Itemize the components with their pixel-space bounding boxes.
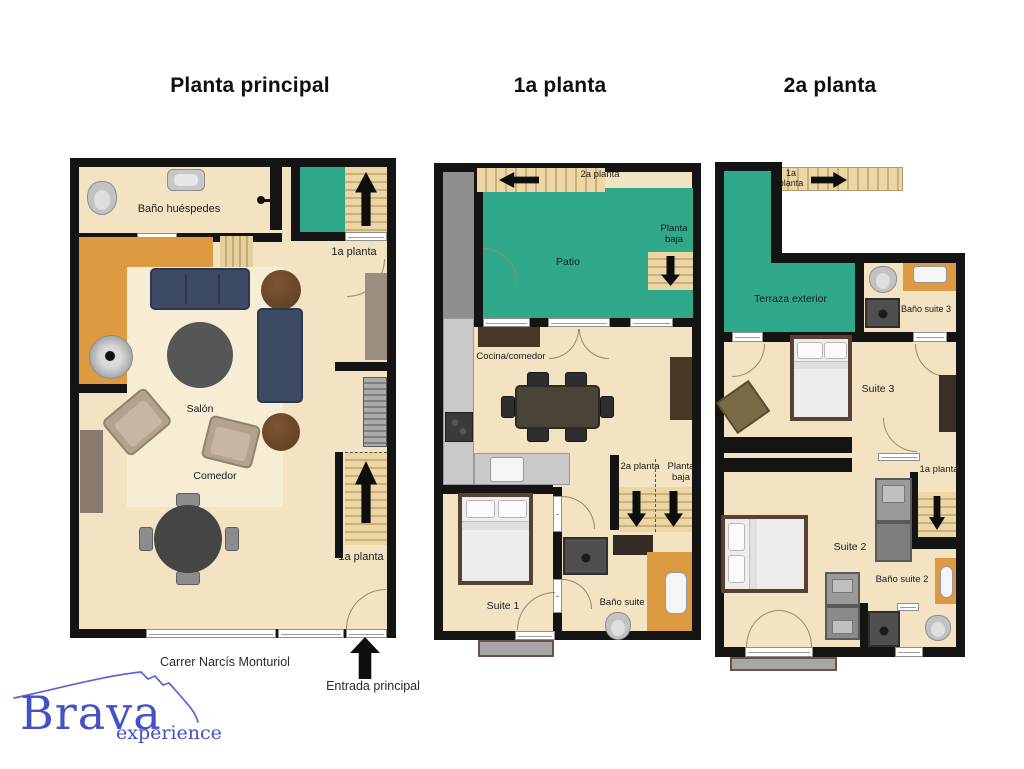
shower-suite2-icon (868, 611, 900, 647)
stairs-divider-dashed (655, 459, 656, 532)
window-patio-1 (483, 318, 530, 327)
wardrobe-suite3 (939, 375, 956, 432)
kitchen-counter-vertical (443, 318, 474, 485)
sofa-vertical (257, 308, 303, 403)
balcony-door-jamb (745, 647, 813, 657)
round-coffee-table (167, 322, 233, 388)
stairs-down-arrow-icon (664, 491, 683, 527)
cabinet-right (365, 273, 387, 360)
dresser-drawer (832, 579, 853, 593)
wall-stub (264, 199, 271, 202)
dining-table (515, 385, 600, 429)
bed-pillow (498, 500, 527, 518)
wall-divider-1 (724, 437, 852, 453)
wall-divider-2 (724, 458, 852, 472)
bed-suite3 (790, 335, 852, 421)
balcony-door-jamb (515, 631, 555, 640)
sink-icon (167, 169, 205, 191)
stove-icon (445, 412, 473, 442)
stairs-bottom-label: 1a planta (331, 551, 391, 564)
stairs-to-planta-baja (648, 252, 693, 290)
sofa-cushion-line (218, 274, 220, 304)
wall-right (956, 253, 965, 657)
bathroom-label: Baño huéspedes (109, 203, 249, 216)
terrace-column (724, 171, 771, 332)
stairs-down-2a (918, 492, 956, 537)
window-front-1 (146, 629, 276, 638)
stairs-down-arrow-icon (661, 256, 680, 286)
wall-bathroom-right (270, 167, 282, 230)
brand-logo: Brava experience (8, 664, 248, 768)
bath2-label: Baño suite 2 (867, 575, 937, 586)
bath1-door-jamb (553, 496, 562, 532)
wall-passage-right (474, 172, 483, 318)
suite2-label: Suite 2 (820, 541, 880, 553)
window-bottom (895, 647, 923, 657)
bath2-sink-icon (940, 566, 953, 598)
door-patio-double-jamb (548, 318, 610, 327)
bath3-sink-icon (913, 266, 947, 283)
stairs-top-label: 1a planta (321, 246, 387, 259)
wall-bath2 (860, 603, 868, 647)
bath3-label: Baño suite 3 (895, 304, 957, 314)
stairs-left-arrow-icon (499, 172, 539, 188)
wall-stairs-bottom-left (335, 452, 343, 558)
stairs-down-arrow-icon (929, 496, 945, 530)
armchair-seat (210, 426, 252, 462)
salon-label: Salón (165, 403, 235, 415)
wood-round-table (261, 270, 301, 310)
wall-terrace-bath (855, 263, 864, 332)
stairs-mid-right-label: Planta baja (660, 462, 702, 484)
bath2-door-jamb (897, 603, 919, 611)
bed-pillow (824, 342, 847, 359)
side-passage-gray (443, 172, 474, 318)
bed-fold (462, 521, 529, 530)
title-2a-planta: 2a planta (750, 74, 910, 98)
dining-chair (527, 427, 549, 442)
dining-chair (565, 427, 587, 442)
stairs-up-arrow-icon (355, 461, 377, 523)
stairs-mid-double (619, 487, 692, 532)
wall-top-main (771, 253, 965, 263)
dresser-unit-top (875, 478, 912, 522)
wood-floor-strip (220, 236, 253, 268)
balcony-2a-planta (730, 657, 837, 671)
stairs-up-arrow-icon (355, 172, 377, 226)
kitchen-label: Cocina/comedor (461, 352, 561, 363)
entrance-door-jamb (346, 629, 387, 638)
title-planta-principal: Planta principal (120, 74, 380, 98)
stairs-patio-label: Planta baja (653, 224, 695, 246)
suite3-label: Suite 3 (848, 383, 908, 395)
bath1-sink-icon (665, 572, 687, 614)
toilet-icon (605, 612, 631, 640)
bed-pillow (797, 342, 823, 359)
terrace-label: Terraza exterior (733, 293, 848, 305)
dining-chair (600, 396, 614, 418)
comedor-label: Comedor (175, 470, 255, 482)
dresser-unit-bottom (875, 522, 912, 562)
wall-stair-left (291, 167, 300, 241)
dresser-suite2-bottom (825, 606, 860, 640)
bed-pillow (728, 555, 745, 583)
bed-fold (749, 519, 757, 589)
title-1a-planta: 1a planta (480, 74, 640, 98)
dining-chair (139, 527, 153, 551)
side-table-center-dot (105, 351, 115, 361)
bed-suite2 (721, 515, 808, 593)
cabinet-right (670, 357, 692, 420)
toilet-icon (869, 266, 897, 293)
entrance-label: Entrada principal (318, 679, 428, 693)
stair-door-jamb (345, 232, 387, 241)
kitchen-sink-icon (490, 457, 524, 482)
round-dining-table (154, 505, 222, 573)
entrance-arrow-icon (350, 637, 380, 679)
suite3-door-jamb-right (913, 332, 947, 342)
wall-stub-right (335, 362, 387, 371)
wall-stairs-mid (610, 455, 619, 530)
bed-fold (794, 361, 848, 369)
stairs-up-top (345, 167, 387, 232)
window-patio-2 (630, 318, 673, 327)
dresser-drawer (882, 485, 905, 503)
balcony-door-arc (517, 592, 555, 630)
dresser-suite2-top (825, 572, 860, 606)
suite3-exit-door-jamb (878, 453, 920, 461)
stairs-down-arrow-icon (627, 491, 646, 527)
stairs-right-arrow-icon (811, 172, 847, 188)
wall-stub-left (79, 384, 127, 393)
shower-suite1-icon (563, 537, 608, 575)
dining-chair (225, 527, 239, 551)
kitchen-cabinet-top (478, 327, 540, 347)
dining-chair (501, 396, 515, 418)
stair-landing-green (300, 167, 345, 232)
wall-stairs3-bottom (910, 537, 956, 549)
stairs-top-label: 2a planta (575, 170, 625, 181)
suite3-door-jamb-left (732, 332, 763, 342)
balcony-1a-planta (478, 640, 554, 657)
bed-pillow (728, 523, 745, 551)
dining-chair (176, 571, 200, 585)
wood-round-table-2 (262, 413, 300, 451)
bed-pillow (466, 500, 495, 518)
sofa-horizontal (150, 268, 250, 310)
window-front-2 (278, 629, 344, 638)
sideboard-left (80, 430, 103, 513)
floor-plan-1a-planta: 2a planta Planta baja Patio Cocina/comed… (434, 163, 701, 640)
radiator (363, 377, 387, 447)
bath1-door-arc (562, 496, 595, 529)
entrance-door-arc (346, 589, 386, 629)
patio-label: Patio (533, 256, 603, 268)
double-door-arc-right (579, 329, 609, 359)
sofa-cushion-line (185, 274, 187, 304)
toilet-icon (925, 615, 951, 641)
floor-plan-2a-planta: 1a planta Terraza exterior Baño suite 3 (715, 162, 965, 657)
stairs-up-bottom (345, 452, 387, 545)
bed-suite1 (458, 493, 533, 585)
stairs-mid-label: 1a planta (918, 465, 960, 476)
logo-tagline-text: experience (116, 722, 222, 744)
wall-column-right (771, 162, 782, 263)
floor-plans-page: Planta principal 1a planta 2a planta Bañ… (0, 0, 1024, 768)
floor-plan-planta-principal: Baño huéspedes 1a planta Salón (70, 158, 396, 638)
dresser-drawer (832, 620, 853, 634)
